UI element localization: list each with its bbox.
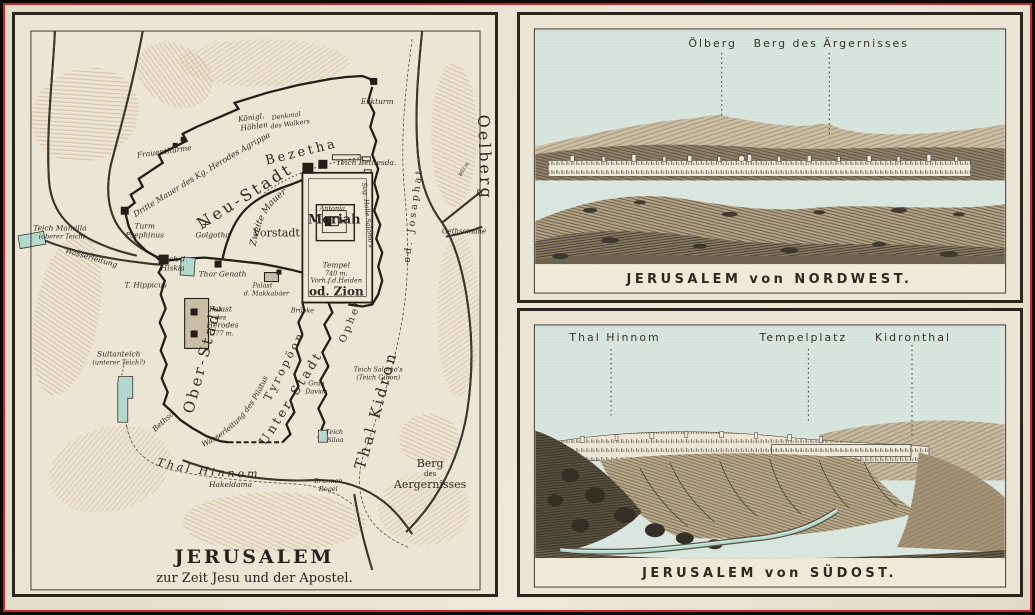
label-golgotha: Golgotha xyxy=(195,231,229,240)
label-moriah: Moriah xyxy=(308,213,361,228)
dome xyxy=(739,156,745,162)
tower-frauenthuerme-2 xyxy=(181,137,186,142)
label-eckturm: Eckturm xyxy=(360,97,394,106)
pano-label-kidronthal: Kidronthal xyxy=(875,331,951,344)
label-hakeldama: Hakeldama xyxy=(208,480,252,489)
pano-label-tempelplatz: Tempelplatz xyxy=(759,331,848,344)
label-berg-aergernisses-2: des xyxy=(424,470,437,478)
label-grab-davids: Grab xyxy=(308,379,324,387)
panorama-nordwest-panel: Ölberg Berg des Ärgernisses JERUSALEM vo… xyxy=(517,12,1023,303)
label-oelberg: Oelberg xyxy=(474,114,495,201)
map-subtitle: zur Zeit Jesu und der Apostel. xyxy=(156,571,352,586)
label-berg-aergernisses: Berg xyxy=(417,457,444,470)
label-berg-aergernisses-3: Aergernisses xyxy=(393,478,467,491)
label-teich-hiskia-2: Hiskia xyxy=(160,264,185,273)
label-gethsemane: Gethsemane xyxy=(442,228,486,236)
gate-genath xyxy=(215,261,222,268)
label-antonia: Antonia xyxy=(319,205,346,213)
pano-label-oelberg: Ölberg xyxy=(688,37,737,50)
map-canvas: Teich Mamilla (oberer Teich) Wasserleitu… xyxy=(15,15,495,594)
label-palast-makkabaeer: Palast xyxy=(252,282,273,290)
label-sultanteich: Sultanteich xyxy=(97,349,141,358)
map-title: JERUSALEM xyxy=(173,546,335,568)
fort-antonia xyxy=(302,163,313,174)
label-teich-mamilla: Teich Mamilla xyxy=(33,224,86,233)
label-teich-siloa: Teich xyxy=(326,428,344,436)
label-bruecke: Brücke xyxy=(290,306,315,314)
map-panel-jerusalem: Teich Mamilla (oberer Teich) Wasserleitu… xyxy=(12,12,498,597)
label-grab-davids-2: Davids xyxy=(304,387,328,395)
pano-label-berg-aergernisses: Berg des Ärgernisses xyxy=(754,37,909,50)
label-teich-bethesda: Teich Bethesda. xyxy=(336,158,396,167)
panorama-nordwest: Ölberg Berg des Ärgernisses JERUSALEM vo… xyxy=(520,15,1020,300)
engraving-plate: Teich Mamilla (oberer Teich) Wasserleitu… xyxy=(0,0,1035,615)
panorama-suedost: Thal Hinnom Tempelplatz Kidronthal JERUS… xyxy=(520,311,1020,594)
panorama-suedost-panel: Thal Hinnom Tempelplatz Kidronthal JERUS… xyxy=(517,308,1023,597)
label-thor-genath: Thor Genath xyxy=(199,270,247,279)
pano-label-thal-hinnom: Thal Hinnom xyxy=(568,331,660,344)
label-turm-psephinus: Turm xyxy=(135,222,155,231)
label-teich-mamilla-2: (oberer Teich) xyxy=(39,233,86,241)
label-brunnen-rogel-2: Rogel xyxy=(318,485,338,493)
label-t-hippicus: T. Hippicus xyxy=(125,281,167,290)
tower-eckturm xyxy=(370,78,377,85)
label-sultanteich-2: (unterer Teich?) xyxy=(92,358,145,366)
caption-suedost: JERUSALEM von SÜDOST. xyxy=(641,565,897,581)
label-teich-hiskia: Teich d. xyxy=(158,255,188,264)
tower-psephinus xyxy=(121,207,129,215)
label-teich-siloa-2: Siloa xyxy=(327,436,343,444)
label-od-zion: od. Zion xyxy=(309,285,364,299)
caption-nordwest: JERUSALEM von NORDWEST. xyxy=(626,272,913,287)
label-vorhof: Vorh.f.d.Heiden xyxy=(311,277,362,285)
label-turm-psephinus-2: Psephinus xyxy=(124,231,164,240)
label-palast-makkabaeer-2: d. Makkabäer xyxy=(244,290,290,298)
label-brunnen-rogel: Brunnen xyxy=(313,477,342,485)
label-tempel: Tempel xyxy=(323,261,351,270)
golgotha-cross: + xyxy=(201,220,209,231)
